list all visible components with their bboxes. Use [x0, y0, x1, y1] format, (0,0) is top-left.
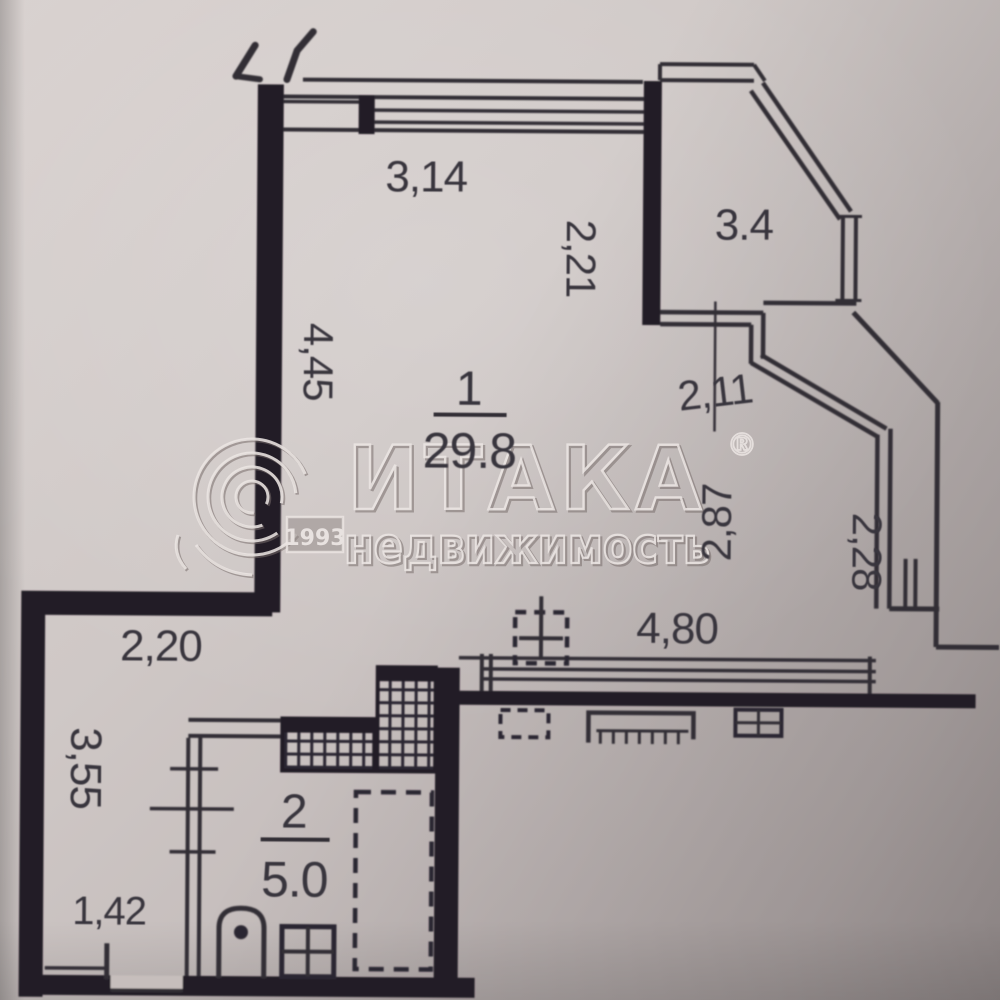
toilet-icon — [219, 908, 264, 978]
bathtub-icon — [355, 792, 432, 970]
room-1-number: 1 — [456, 363, 482, 416]
room-1-fraction-bar — [434, 415, 507, 416]
dim-label-bay-area: 3.4 — [715, 200, 774, 249]
room-1-area: 29.8 — [422, 422, 516, 479]
watermark-year: 1993 — [284, 526, 345, 551]
dim-label-hall-bottom: 1,42 — [72, 889, 146, 934]
room-2-number: 2 — [281, 785, 307, 838]
dim-label-upper-right-wall: 2,21 — [557, 220, 605, 298]
dim-label-hall-top: 2,20 — [120, 621, 202, 671]
vent-grille-icon — [515, 596, 567, 663]
small-window-icon — [735, 710, 781, 736]
watermark-year-badge: 1993 — [284, 517, 345, 552]
room-1-label: 1 29.8 — [422, 362, 516, 479]
bathroom-door — [150, 769, 235, 853]
radiator-icon — [588, 713, 693, 745]
top-window — [260, 79, 644, 136]
balcony-tick-marks — [236, 31, 313, 80]
vent-shaft-a — [282, 718, 374, 771]
dim-label-right-wall: 2,87 — [693, 483, 741, 561]
dashed-box-icon — [500, 710, 548, 737]
right-wall — [713, 301, 1000, 647]
room-2-label: 2 5.0 — [260, 785, 330, 907]
dim-label-bottom-window: 4,80 — [636, 604, 718, 654]
registered-trademark-icon: ® — [727, 428, 757, 463]
dim-label-hall-left: 3,55 — [61, 727, 111, 809]
sink-icon — [282, 926, 334, 976]
floor-plan-photo: 1993 ИТАКА ИТАКА ® недвижимость недвижим… — [0, 0, 1000, 1000]
room-2-area: 5.0 — [261, 851, 328, 907]
bay-partition-wall — [642, 81, 662, 325]
below-wall-symbols — [500, 708, 781, 745]
dim-label-top-window: 3,14 — [385, 152, 468, 202]
left-wall — [254, 84, 284, 612]
vent-shaft-b — [377, 667, 436, 771]
dim-label-loggia-right: 2,28 — [843, 513, 891, 591]
floor-plan-drawing: 1993 ИТАКА ИТАКА ® недвижимость недвижим… — [0, 0, 1000, 1000]
dim-label-left-wall: 4,45 — [295, 323, 343, 401]
dim-label-bay-bottom: 2,11 — [675, 364, 755, 419]
watermark-swirl-logo — [170, 415, 335, 580]
watermark-brand: ИТАКА — [347, 427, 707, 530]
watermark-subtitle: недвижимость — [344, 517, 710, 575]
